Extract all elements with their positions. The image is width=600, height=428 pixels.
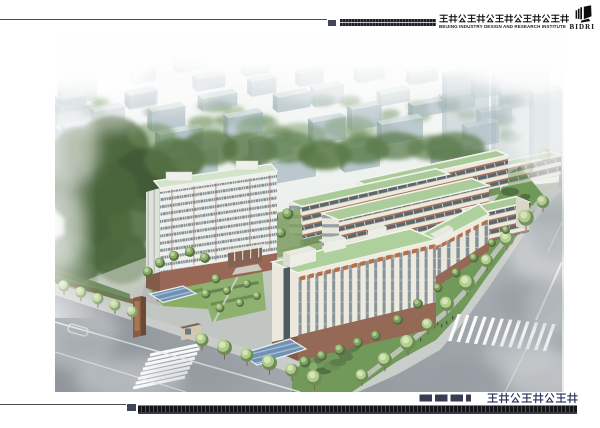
svg-text:BIDRI: BIDRI	[570, 23, 595, 31]
